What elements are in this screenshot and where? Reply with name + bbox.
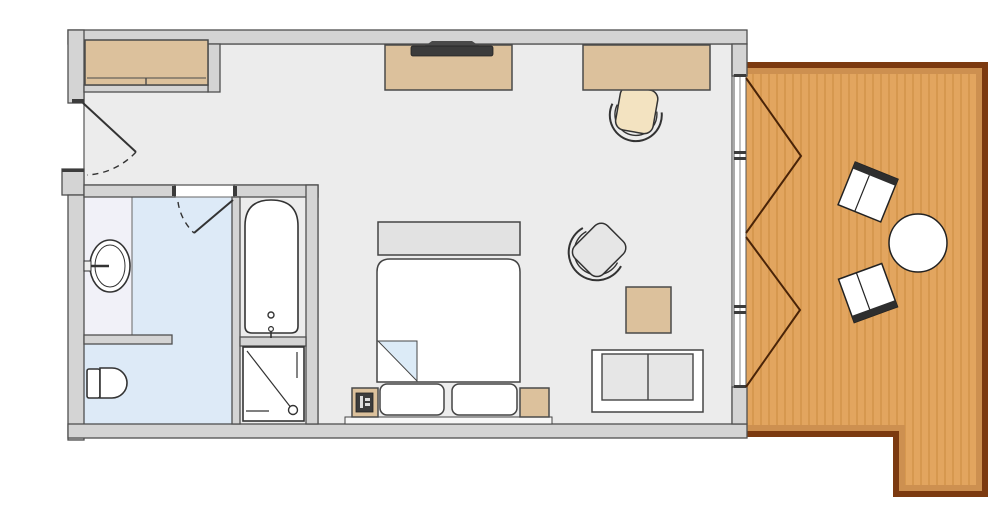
left-wall-lower [68, 195, 84, 440]
bathroom-right-wall [306, 185, 318, 424]
balcony-round-table [889, 214, 947, 272]
pillow-left [380, 384, 444, 415]
bottom-wall [68, 424, 747, 438]
bathroom-top-wall-left [84, 185, 175, 197]
nightstand-right [520, 388, 549, 417]
floor-plan [0, 0, 1000, 514]
wardrobe-niche-lintel [84, 85, 208, 92]
desk [583, 45, 710, 90]
entry-jamb-tick-top [72, 99, 84, 103]
left-wall-upper [68, 30, 84, 103]
headboard [345, 417, 552, 424]
wardrobe [85, 40, 208, 85]
shower-drain [289, 406, 298, 415]
bathroom-inner-wall [232, 197, 240, 424]
wardrobe-niche-wall [208, 44, 220, 92]
entry-pier [62, 169, 84, 195]
right-wall-lower [732, 387, 747, 424]
bathtub [245, 200, 298, 338]
shower [243, 347, 304, 421]
sink-faucet [84, 261, 91, 271]
floor-plan-drawing [0, 0, 1000, 514]
duvet [377, 259, 520, 382]
bathtub-drain [268, 312, 274, 318]
toilet [87, 368, 127, 398]
foot-bench [378, 222, 520, 255]
entry-jamb-tick-bottom [62, 169, 84, 172]
bath-jamb-tick-left [172, 186, 176, 196]
tub-shower-divider-wall [240, 337, 306, 346]
side-table [626, 287, 671, 333]
nightstand-lamp-icon [356, 393, 373, 412]
sofa [592, 350, 703, 412]
pillow-right [452, 384, 517, 415]
right-wall-upper [732, 44, 747, 76]
sink-half-wall [84, 335, 172, 344]
bath-jamb-tick-right [233, 186, 237, 196]
